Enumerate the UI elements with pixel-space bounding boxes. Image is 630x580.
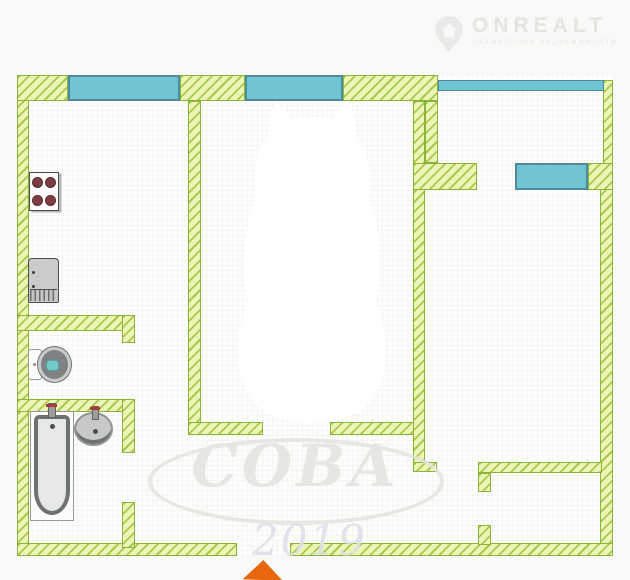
closet-stub-top — [478, 473, 491, 492]
room-divider-foot — [413, 462, 437, 472]
stove-burner-icon — [45, 195, 56, 206]
owl-watermark-icon — [212, 96, 412, 441]
sink-drain-icon — [93, 429, 98, 434]
stove-burner-icon — [32, 177, 43, 188]
kitchen-divider-foot — [188, 422, 263, 435]
stove-burner-icon — [45, 177, 56, 188]
right-wall — [600, 163, 613, 556]
room1-window — [245, 75, 343, 101]
bathtub-basin — [34, 415, 70, 515]
stove-burner-icon — [32, 195, 43, 206]
bath-drain-icon — [50, 424, 55, 429]
toilet-flush-button-icon — [46, 360, 59, 371]
sink-faucet-icon — [92, 406, 99, 420]
balcony-right-wall — [603, 80, 613, 164]
bath-door-stub — [122, 502, 135, 548]
wc-bottom-stub — [122, 399, 135, 453]
bathtub — [30, 411, 74, 521]
closet-wall — [478, 462, 602, 473]
kitchen-window — [68, 75, 180, 101]
stove — [29, 172, 59, 211]
room1-bottom-wall — [330, 422, 425, 435]
brand-name: ONREALT — [472, 13, 618, 39]
room-divider — [413, 101, 425, 472]
room-divider-thick — [425, 101, 438, 163]
balcony-wall-right — [588, 163, 613, 190]
top-wall-b — [180, 75, 245, 101]
balcony-window — [515, 163, 588, 190]
kitchen-bottom-stub — [122, 315, 135, 343]
kitchen-bottom-wall — [17, 315, 133, 331]
toilet — [38, 347, 71, 382]
top-wall-c — [343, 75, 438, 101]
brand-subtitle: ОБЪЯВЛЕНИЯ НЕДВИЖИМОСТИ — [472, 39, 618, 46]
sink — [74, 412, 113, 446]
onrealt-watermark: ONREALT ОБЪЯВЛЕНИЯ НЕДВИЖИМОСТИ — [432, 13, 622, 57]
year-watermark: 2019 — [252, 516, 367, 565]
top-wall-a — [17, 75, 68, 101]
refrigerator — [28, 258, 59, 303]
bath-faucet-icon — [48, 403, 56, 418]
closet-stub-bottom — [478, 525, 491, 545]
balcony-wall-left — [413, 163, 477, 190]
kitchen-room-divider — [188, 101, 201, 428]
balcony-glazing — [438, 80, 604, 91]
floor-plan-image: ONREALT ОБЪЯВЛЕНИЯ НЕДВИЖИМОСТИ СОВА 201… — [0, 0, 630, 580]
map-pin-house-icon — [432, 13, 466, 57]
